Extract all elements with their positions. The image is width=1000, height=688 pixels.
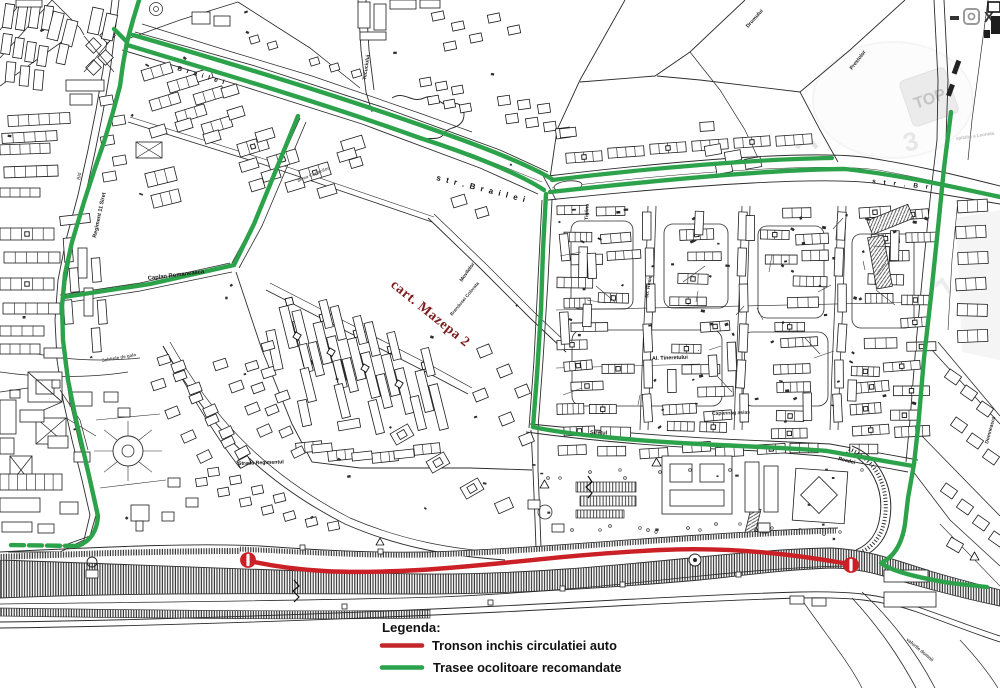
svg-text:Tronson inchis circulatiei aut: Tronson inchis circulatiei auto xyxy=(432,638,617,653)
svg-text:Al. Tineretului: Al. Tineretului xyxy=(652,355,689,362)
svg-text:Bld: Bld xyxy=(76,172,83,180)
svg-text:Siretul: Siretul xyxy=(590,430,608,437)
svg-text:Legenda:: Legenda: xyxy=(382,620,441,635)
svg-text:Trasee ocolitoare recomandate: Trasee ocolitoare recomandate xyxy=(433,660,621,675)
svg-text:Tiglina: Tiglina xyxy=(584,204,591,220)
